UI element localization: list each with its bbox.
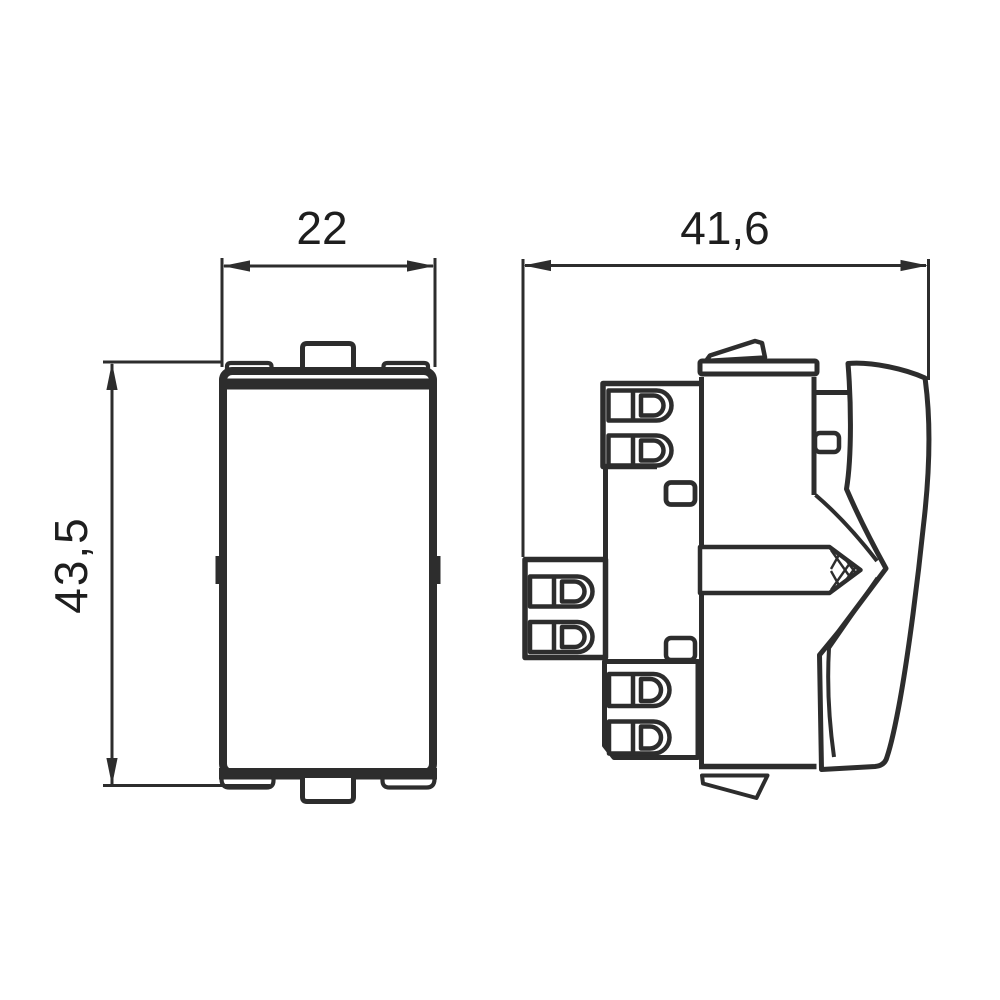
svg-text:43,5: 43,5 xyxy=(45,516,97,614)
svg-text:22: 22 xyxy=(296,202,347,254)
svg-text:41,6: 41,6 xyxy=(680,202,770,254)
